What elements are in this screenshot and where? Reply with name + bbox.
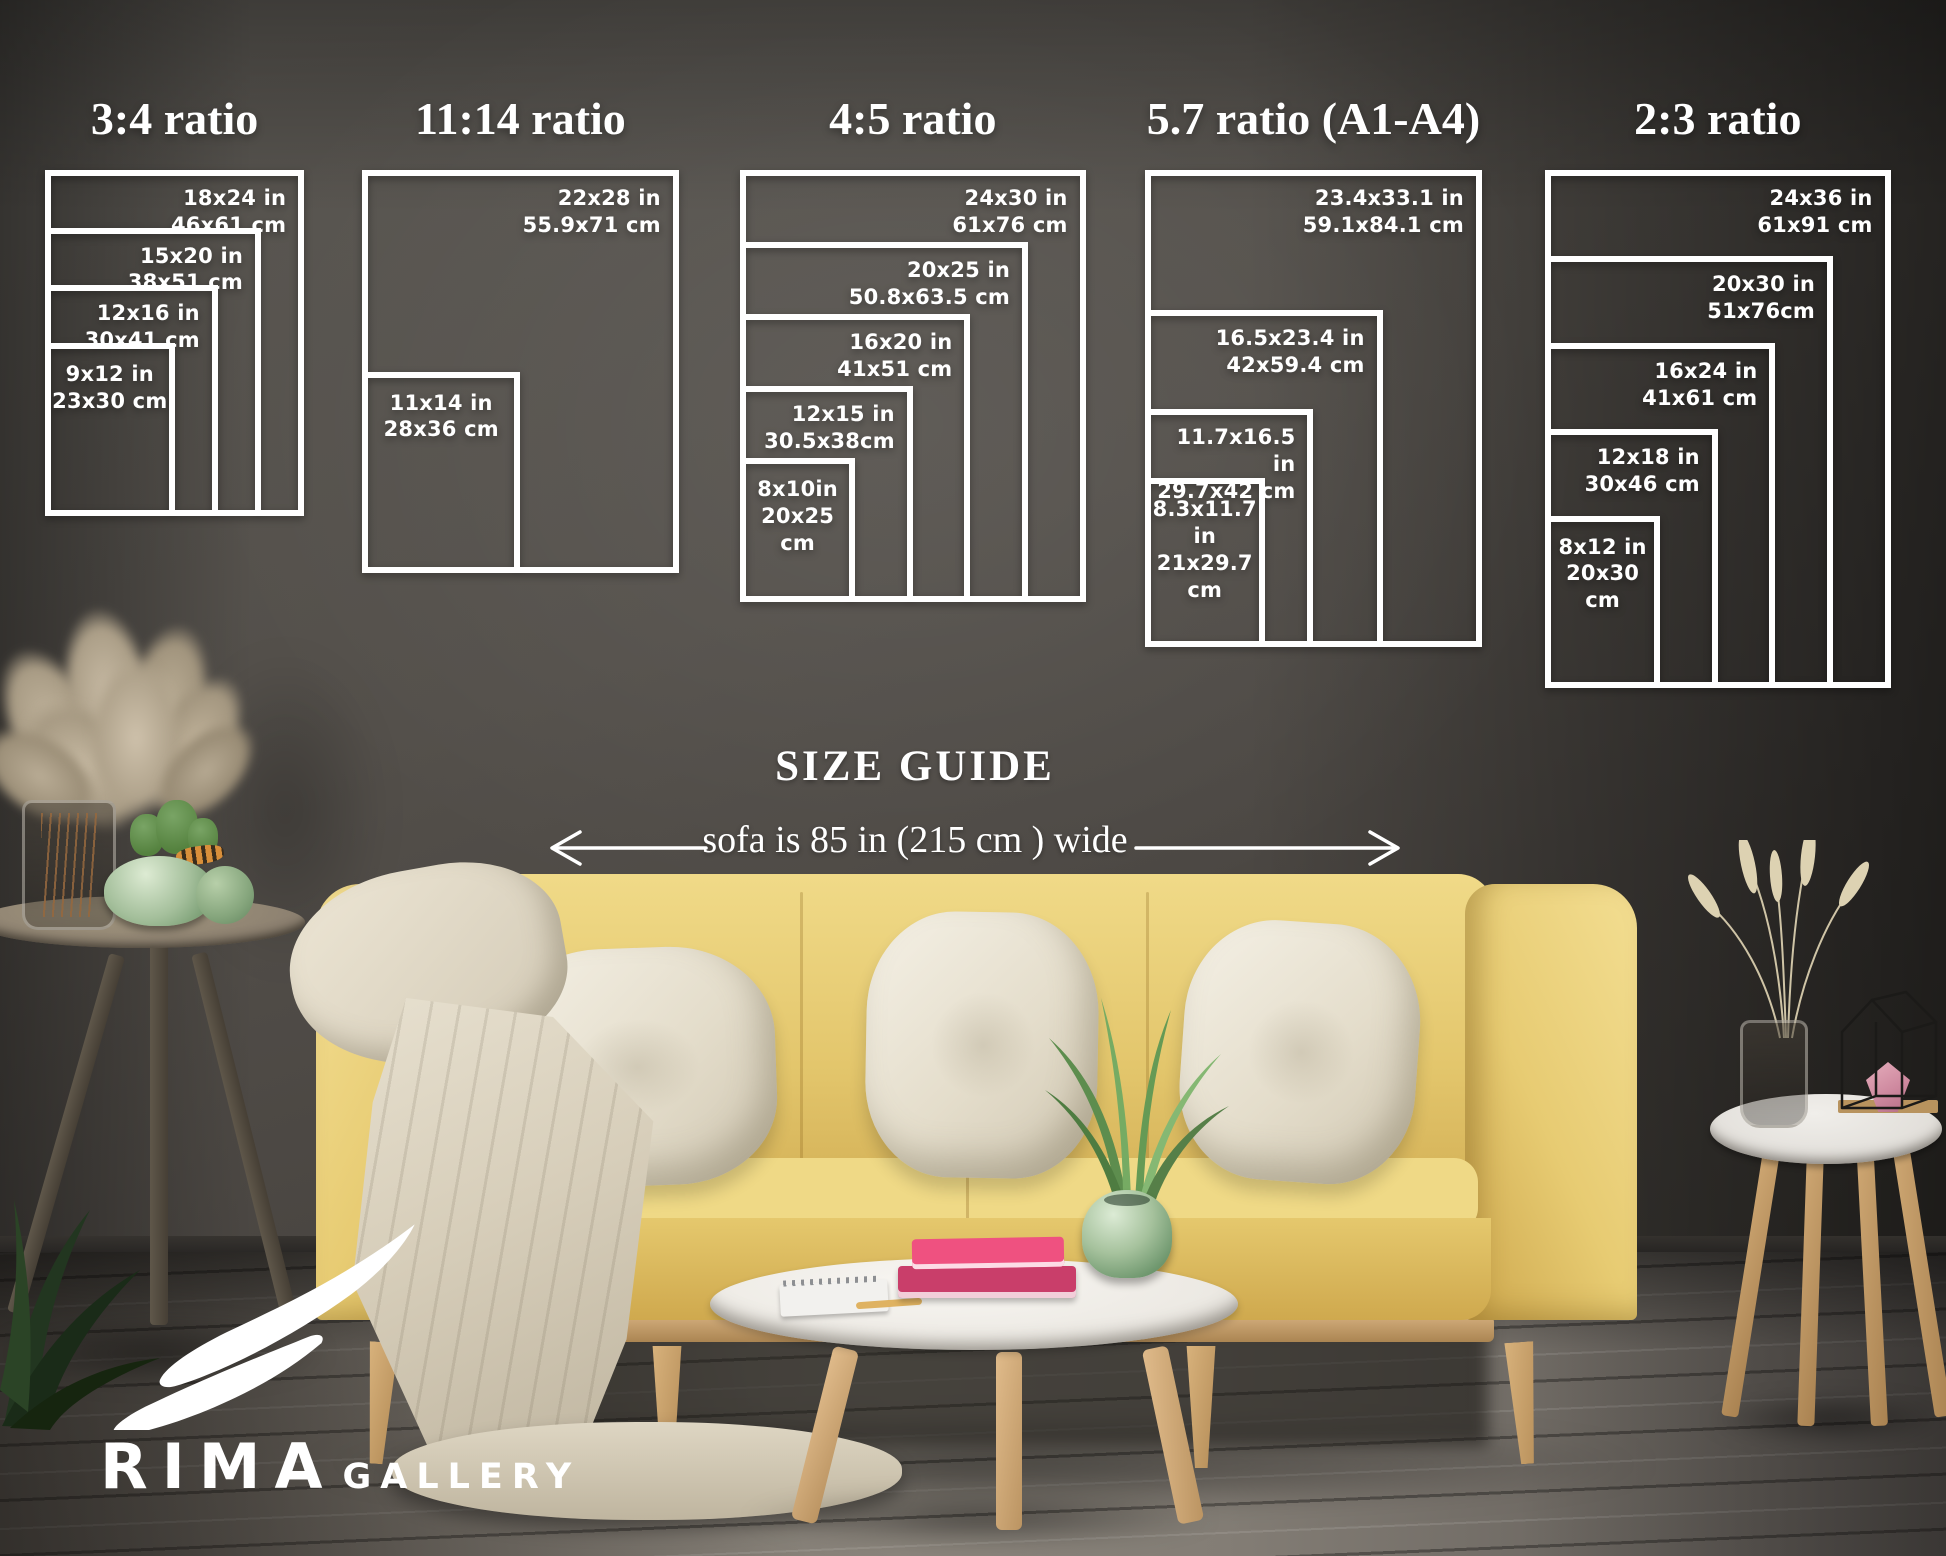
size-label: 24x30 in61x76 cm xyxy=(952,185,1067,239)
size-label-cm: 23x30 cm xyxy=(51,388,169,415)
size-label-cm: 51x76cm xyxy=(1707,298,1815,325)
size-label-inches: 18x24 in xyxy=(171,185,286,212)
coffee-table-leg xyxy=(996,1352,1022,1530)
size-label-inches: 16.5x23.4 in xyxy=(1216,325,1365,352)
size-group-title: 5.7 ratio (A1-A4) xyxy=(1147,92,1480,145)
size-group-4-5: 4:5 ratio 24x30 in61x76 cm20x25 in50.8x6… xyxy=(740,170,1086,602)
size-label: 20x30 in51x76cm xyxy=(1707,271,1815,325)
size-label-cm: 42x59.4 cm xyxy=(1216,352,1365,379)
size-label: 24x36 in61x91 cm xyxy=(1757,185,1872,239)
logo-swoosh-icon xyxy=(96,1218,426,1430)
brand-logo: RIMAGALLERY xyxy=(96,1218,556,1498)
size-label-inches: 11x14 in xyxy=(368,390,514,417)
size-label-cm: 41x51 cm xyxy=(837,356,952,383)
size-box-4-5-8x10in: 8x10in20x25 cm xyxy=(740,458,855,602)
size-label-cm: 20x25 cm xyxy=(746,503,849,557)
size-label: 11x14 in28x36 cm xyxy=(368,390,514,444)
green-plant-vase xyxy=(1082,1190,1172,1278)
width-arrows-icon xyxy=(540,824,1420,872)
size-label: 16.5x23.4 in42x59.4 cm xyxy=(1216,325,1365,379)
size-label-cm: 41x61 cm xyxy=(1642,385,1757,412)
sofa-seam xyxy=(800,892,803,1168)
size-box-5-7-8.3x11.7in: 8.3x11.7 in21x29.7 cm xyxy=(1145,478,1265,646)
size-label-inches: 12x15 in xyxy=(764,401,895,428)
size-group-11-14: 11:14 ratio 22x28 in55.9x71 cm11x14 in28… xyxy=(362,170,679,573)
size-label-cm: 28x36 cm xyxy=(368,416,514,443)
size-label-inches: 8.3x11.7 in xyxy=(1151,496,1259,550)
size-label: 16x20 in41x51 cm xyxy=(837,329,952,383)
size-label-cm: 61x91 cm xyxy=(1757,212,1872,239)
potted-plant-leaves xyxy=(1005,980,1255,1205)
size-label: 22x28 in55.9x71 cm xyxy=(523,185,661,239)
brand-name: RIMAGALLERY xyxy=(100,1430,580,1503)
size-group-3-4: 3:4 ratio 18x24 in46x61 cm15x20 in38x51 … xyxy=(45,170,304,516)
size-label-inches: 8x12 in xyxy=(1551,534,1654,561)
stool-shadow xyxy=(1706,1396,1946,1442)
size-label-cm: 59.1x84.1 cm xyxy=(1303,212,1464,239)
size-label-cm: 50.8x63.5 cm xyxy=(849,284,1010,311)
size-label-inches: 23.4x33.1 in xyxy=(1303,185,1464,212)
size-label-cm: 61x76 cm xyxy=(952,212,1067,239)
size-label-inches: 9x12 in xyxy=(51,361,169,388)
wire-house-terrarium xyxy=(1832,988,1946,1118)
size-label: 12x18 in30x46 cm xyxy=(1585,444,1700,498)
pink-book-top xyxy=(912,1237,1065,1270)
size-label-cm: 20x30 cm xyxy=(1551,560,1654,614)
brand-name-primary: RIMA xyxy=(100,1430,337,1503)
size-label-inches: 20x25 in xyxy=(849,257,1010,284)
notebook xyxy=(779,1279,889,1317)
size-label: 16x24 in41x61 cm xyxy=(1642,358,1757,412)
size-label-inches: 24x36 in xyxy=(1757,185,1872,212)
size-group-title: 3:4 ratio xyxy=(91,92,258,145)
size-label: 8x12 in20x30 cm xyxy=(1551,534,1654,615)
size-label: 12x15 in30.5x38cm xyxy=(764,401,895,455)
size-label-inches: 11.7x16.5 in xyxy=(1151,424,1295,478)
size-label-inches: 15x20 in xyxy=(128,243,243,270)
brand-name-secondary: GALLERY xyxy=(343,1457,581,1497)
size-label: 20x25 in50.8x63.5 cm xyxy=(849,257,1010,311)
size-label-inches: 8x10in xyxy=(746,476,849,503)
size-label: 9x12 in23x30 cm xyxy=(51,361,169,415)
size-label: 8x10in20x25 cm xyxy=(746,476,849,557)
size-group-title: 11:14 ratio xyxy=(415,92,626,145)
size-label-inches: 16x20 in xyxy=(837,329,952,356)
size-box-2-3-8x12in: 8x12 in20x30 cm xyxy=(1545,516,1660,689)
size-guide-heading: SIZE GUIDE xyxy=(0,742,1830,791)
size-label-cm: 30.5x38cm xyxy=(764,428,895,455)
size-label-inches: 22x28 in xyxy=(523,185,661,212)
size-label-cm: 55.9x71 cm xyxy=(523,212,661,239)
size-label-cm: 21x29.7 cm xyxy=(1151,550,1259,604)
size-label-inches: 24x30 in xyxy=(952,185,1067,212)
glass-vase-stool xyxy=(1740,1020,1808,1128)
pink-book-bottom xyxy=(898,1266,1076,1298)
size-group-title: 4:5 ratio xyxy=(829,92,996,145)
size-group-5-7: 5.7 ratio (A1-A4) 23.4x33.1 in59.1x84.1 … xyxy=(1145,170,1482,647)
size-group-2-3: 2:3 ratio 24x36 in61x91 cm20x30 in51x76c… xyxy=(1545,170,1891,688)
size-label-inches: 16x24 in xyxy=(1642,358,1757,385)
vase-opening xyxy=(1104,1194,1151,1206)
size-label-inches: 12x16 in xyxy=(85,300,200,327)
size-label-inches: 12x18 in xyxy=(1585,444,1700,471)
size-label: 8.3x11.7 in21x29.7 cm xyxy=(1151,496,1259,604)
size-label-inches: 20x30 in xyxy=(1707,271,1815,298)
size-box-11-14-11x14in: 11x14 in28x36 cm xyxy=(362,372,520,574)
size-label: 23.4x33.1 in59.1x84.1 cm xyxy=(1303,185,1464,239)
green-vase-small xyxy=(196,866,254,924)
pillow-crease xyxy=(1245,997,1358,1108)
size-box-3-4-9x12in: 9x12 in23x30 cm xyxy=(45,343,175,516)
size-group-title: 2:3 ratio xyxy=(1634,92,1801,145)
size-label-cm: 30x46 cm xyxy=(1585,471,1700,498)
size-guide-mockup: RIMAGALLERY 3:4 ratio 18x24 in46x61 cm15… xyxy=(0,0,1946,1556)
